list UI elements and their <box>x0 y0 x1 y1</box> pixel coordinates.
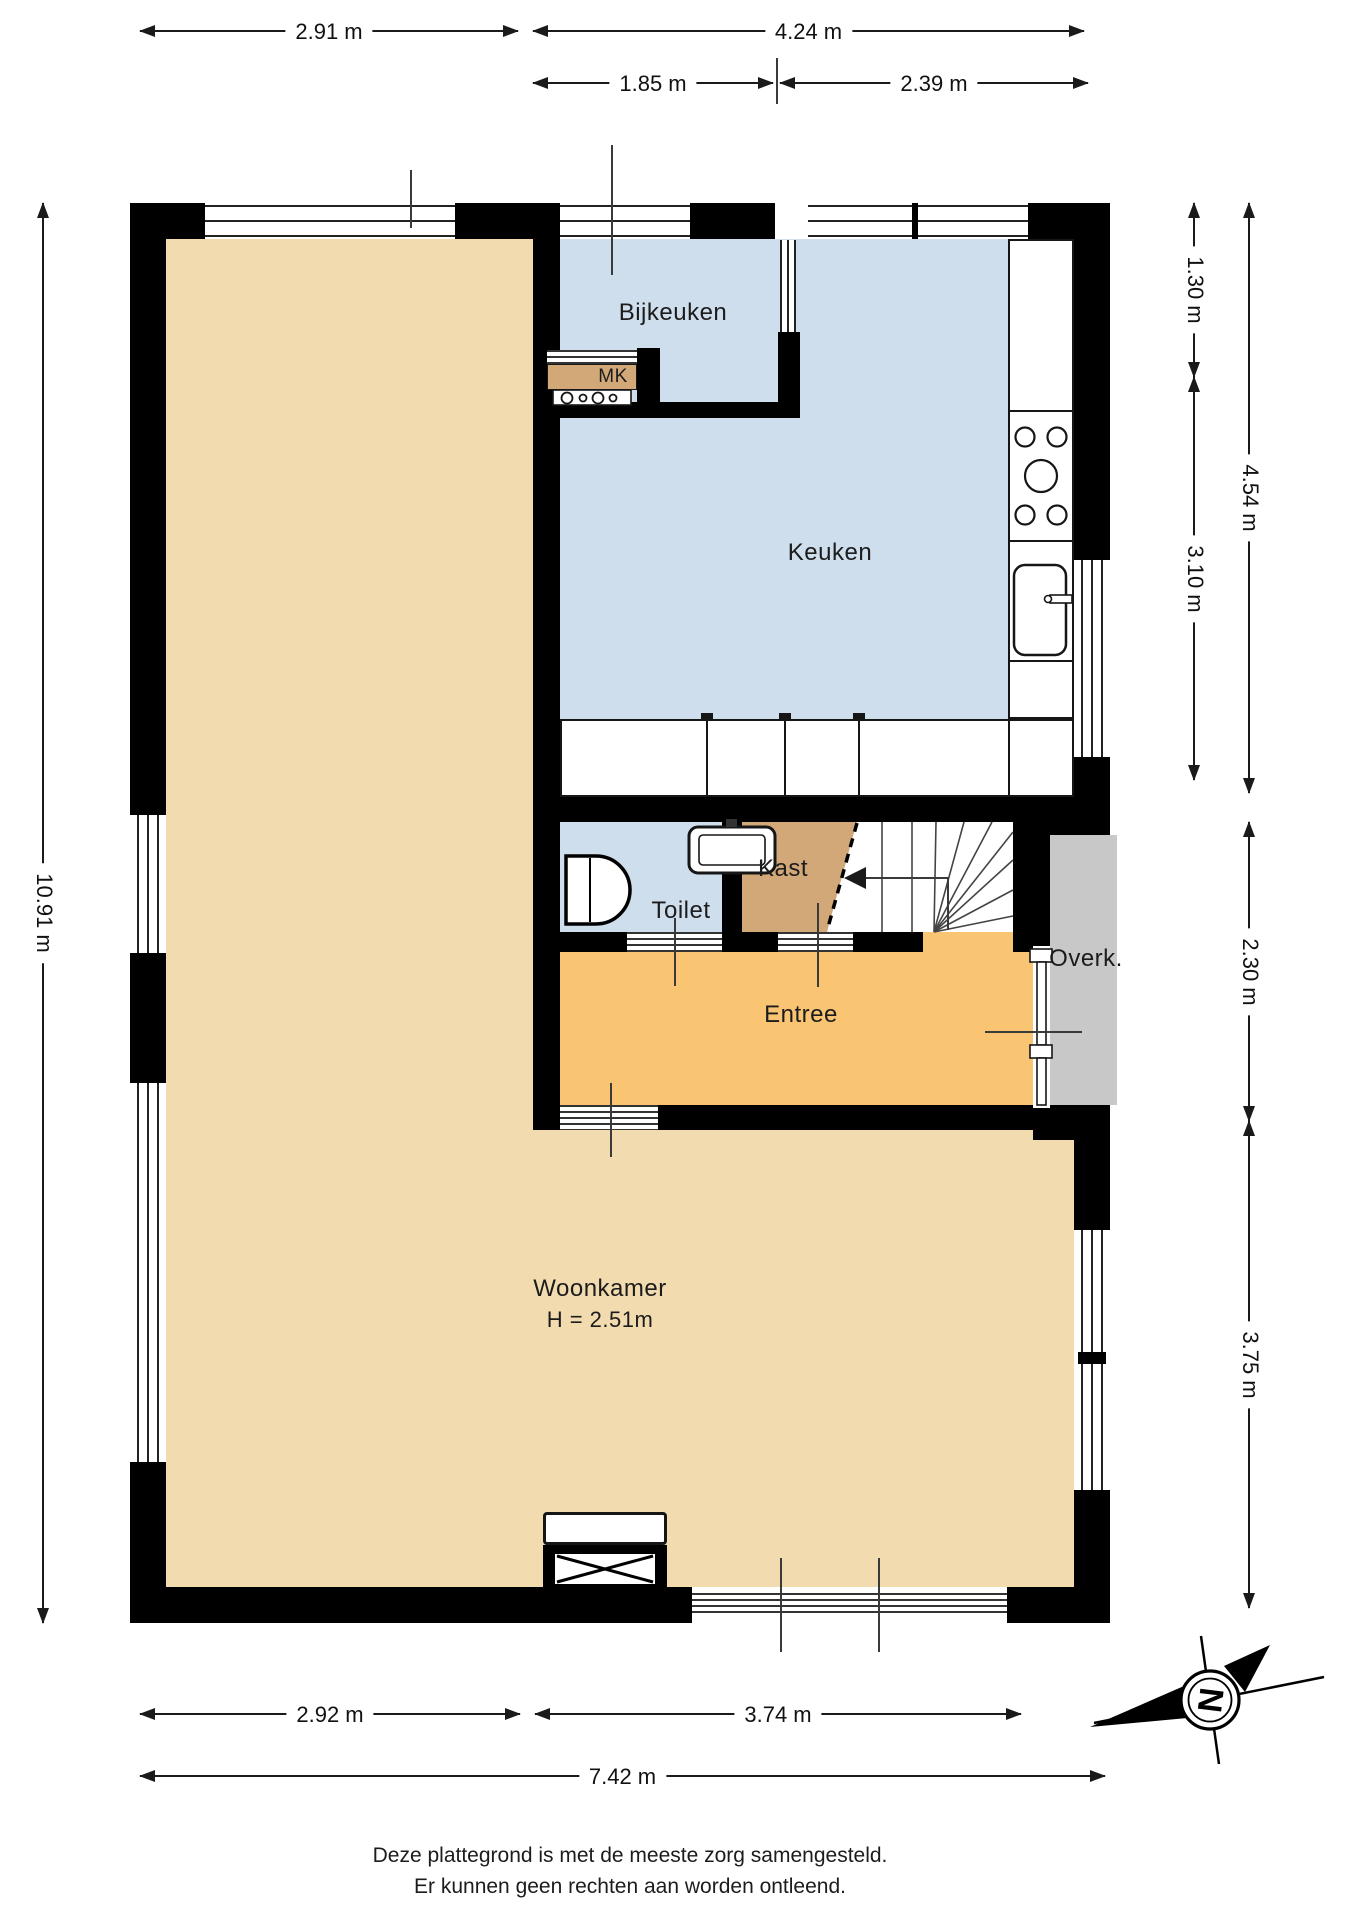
tick-slider-1 <box>780 1558 782 1652</box>
tick-front-door <box>985 1031 1082 1033</box>
tick-entree-door <box>610 1083 612 1157</box>
dim-right-3_75: 3.75 m <box>1248 1121 1250 1608</box>
label-toilet: Toilet <box>651 897 710 925</box>
wall-right-3 <box>1074 1140 1110 1230</box>
dim-right-4_54: 4.54 m <box>1248 203 1250 793</box>
wall-mid-horizontal <box>533 797 1013 822</box>
counter-divider-2 <box>784 719 786 797</box>
wall-entree-bottom <box>658 1105 1033 1130</box>
label-keuken: Keuken <box>788 539 872 567</box>
wall-stairs-right <box>1013 835 1050 932</box>
label-bijkeuken: Bijkeuken <box>619 299 728 327</box>
wall-stairs-corner <box>1013 932 1050 952</box>
window-top-keuken-2 <box>918 205 1028 237</box>
disclaimer-line-2: Er kunnen geen rechten aan worden ontlee… <box>0 1871 1260 1902</box>
wall-toilet-right <box>722 822 742 932</box>
tick-slider-2 <box>878 1558 880 1652</box>
window-top-woonkamer <box>205 205 455 237</box>
wall-bottom-left <box>130 1587 692 1623</box>
wall-entree-step-out <box>1033 1105 1110 1140</box>
dim-bottom-3_74: 3.74 m <box>535 1713 1021 1715</box>
dim-bottom-2_92: 2.92 m <box>140 1713 520 1715</box>
wall-mid-horizontal-right <box>1013 797 1110 835</box>
counter-right-divider-3 <box>1008 660 1074 662</box>
dim-right-2_30: 2.30 m <box>1248 822 1250 1121</box>
wall-left-1 <box>130 203 166 815</box>
dim-right-4_54-label: 4.54 m <box>1236 454 1264 541</box>
window-right-woonkamer-divider <box>1078 1352 1106 1364</box>
wall-bijkeuken-right <box>778 332 800 406</box>
dim-right-3_75-label: 3.75 m <box>1236 1321 1264 1408</box>
woonkamer-floor-upper <box>166 239 533 1587</box>
dim-top-2_91-label: 2.91 m <box>285 18 372 46</box>
compass-icon: N <box>1090 1636 1324 1764</box>
wall-mk-stub <box>637 348 660 406</box>
kitchen-counter-right <box>1008 239 1074 719</box>
window-top-bijkeuken <box>560 205 690 237</box>
wall-top-corner-right <box>1028 203 1110 239</box>
dim-top-4_24: 4.24 m <box>533 30 1084 32</box>
window-right-keuken <box>1081 560 1103 757</box>
fireplace-surround <box>543 1545 667 1587</box>
dim-top-2_39-label: 2.39 m <box>890 70 977 98</box>
window-top-keuken-1 <box>808 205 912 237</box>
sliding-door-woonkamer <box>692 1593 1007 1617</box>
floorplan-page: N Bijkeuken MK Keuken Toilet Kast Entree… <box>0 0 1358 1920</box>
counter-handle-3 <box>853 713 865 719</box>
tick-kast-door <box>817 903 819 987</box>
counter-divider-4 <box>1008 719 1010 797</box>
wall-right-1 <box>1074 239 1110 560</box>
tick-toilet-door <box>674 918 676 986</box>
tick-bijkeuken <box>611 145 613 275</box>
counter-divider-3 <box>858 719 860 797</box>
counter-right-divider-2 <box>1008 540 1074 542</box>
dim-left-10_91-label: 10.91 m <box>30 863 58 963</box>
dim-top-1_85-label: 1.85 m <box>609 70 696 98</box>
wall-entree-bottom-corner <box>533 1105 560 1130</box>
tick-top-dim <box>776 58 778 104</box>
dim-bottom-7_42-label: 7.42 m <box>579 1763 666 1791</box>
dim-bottom-3_74-label: 3.74 m <box>734 1701 821 1729</box>
disclaimer-line-1: Deze plattegrond is met de meeste zorg s… <box>0 1840 1260 1871</box>
kitchen-counter-bottom <box>560 719 1074 797</box>
label-woonkamer-height: H = 2.51m <box>547 1307 654 1333</box>
label-mk: MK <box>598 366 628 388</box>
stairs-floor <box>827 822 1013 932</box>
dim-bottom-2_92-label: 2.92 m <box>286 1701 373 1729</box>
label-entree: Entree <box>764 1001 838 1029</box>
counter-divider-1 <box>706 719 708 797</box>
label-kast: Kast <box>758 855 808 883</box>
compass-north-label: N <box>1190 1685 1231 1714</box>
wall-bottom-corner-right <box>1007 1587 1110 1623</box>
fireplace-hearth <box>543 1512 667 1545</box>
wall-top-mid-2 <box>690 203 775 239</box>
dim-top-2_39: 2.39 m <box>780 82 1088 84</box>
dim-bottom-7_42: 7.42 m <box>140 1775 1105 1777</box>
dim-right-3_10-label: 3.10 m <box>1181 535 1209 622</box>
disclaimer: Deze plattegrond is met de meeste zorg s… <box>0 1840 1260 1902</box>
door-sill-kast <box>778 932 853 952</box>
dim-right-1_30-label: 1.30 m <box>1181 246 1209 333</box>
dim-right-3_10: 3.10 m <box>1193 377 1195 780</box>
counter-handle-2 <box>779 713 791 719</box>
wall-toilet-bottom-right <box>722 932 778 952</box>
mk-shelf <box>547 350 637 364</box>
wall-left-2 <box>130 953 166 1083</box>
counter-handle-1 <box>701 713 713 719</box>
dim-right-1_30: 1.30 m <box>1193 203 1195 377</box>
dim-top-4_24-label: 4.24 m <box>765 18 852 46</box>
dim-left-10_91: 10.91 m <box>42 203 44 1623</box>
wall-toilet-bottom-left <box>560 932 627 952</box>
door-opening-bijkeuken-exterior <box>775 203 808 239</box>
door-sill-entree-woonkamer <box>560 1105 658 1130</box>
window-left-1 <box>137 815 159 953</box>
window-left-2 <box>137 1083 159 1462</box>
dim-right-2_30-label: 2.30 m <box>1236 928 1264 1015</box>
counter-right-divider-1 <box>1008 410 1074 412</box>
tick-top-window <box>410 170 412 228</box>
door-leaf-bijkeuken <box>780 240 796 332</box>
wall-top-mid-1 <box>455 203 560 239</box>
dim-top-2_91: 2.91 m <box>140 30 518 32</box>
wall-bijkeuken-bottom <box>533 402 800 418</box>
label-overkapping: Overk. <box>1049 945 1123 973</box>
dim-top-1_85: 1.85 m <box>533 82 773 84</box>
wall-stairs-bottom <box>853 932 923 952</box>
label-woonkamer: Woonkamer <box>533 1275 666 1303</box>
